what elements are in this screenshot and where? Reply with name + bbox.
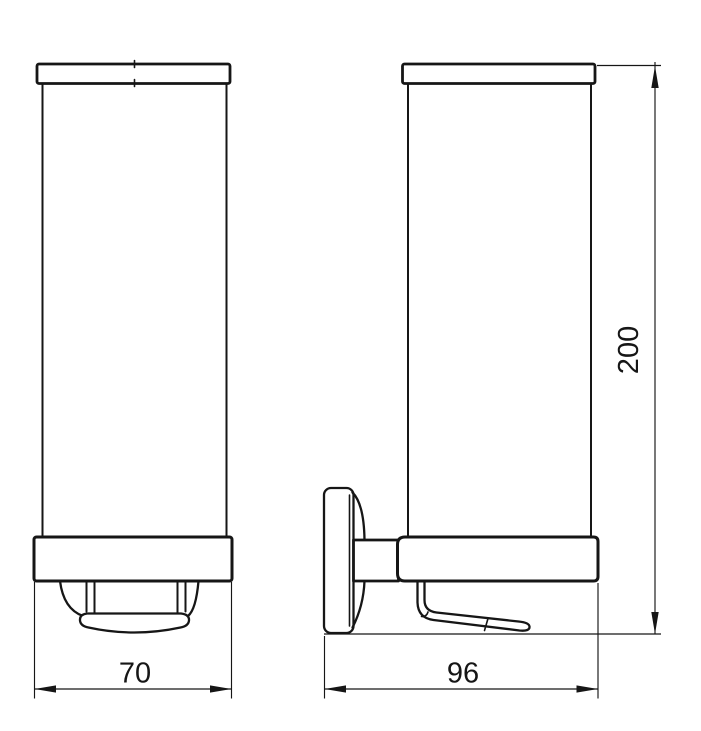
lever-joint-line bbox=[485, 619, 489, 631]
front-bracket-bar bbox=[80, 614, 189, 633]
dimension-depth: 96 bbox=[325, 583, 599, 699]
mounting-arm bbox=[354, 540, 399, 581]
technical-drawing: 70 96 200 bbox=[0, 0, 701, 731]
drawing-canvas: 70 96 200 bbox=[0, 0, 701, 731]
front-lid bbox=[37, 64, 230, 84]
dimension-label-width: 70 bbox=[119, 658, 151, 690]
front-bracket-right-arc bbox=[188, 581, 199, 616]
side-view bbox=[324, 64, 598, 633]
arrowhead-right-icon bbox=[210, 685, 232, 692]
arrowhead-right-icon bbox=[577, 685, 599, 692]
front-holder-ring bbox=[34, 537, 232, 581]
front-bracket-left-arc bbox=[60, 581, 83, 616]
dimension-label-height: 200 bbox=[613, 326, 645, 374]
side-lid bbox=[403, 64, 596, 84]
release-lever bbox=[418, 581, 530, 631]
arrowhead-down-icon bbox=[651, 612, 658, 634]
arrowhead-left-icon bbox=[325, 685, 347, 692]
dimension-label-depth: 96 bbox=[447, 658, 479, 690]
front-view bbox=[34, 61, 232, 633]
arrowhead-left-icon bbox=[35, 685, 57, 692]
side-holder-ring bbox=[398, 537, 599, 581]
arrowhead-up-icon bbox=[651, 66, 658, 88]
